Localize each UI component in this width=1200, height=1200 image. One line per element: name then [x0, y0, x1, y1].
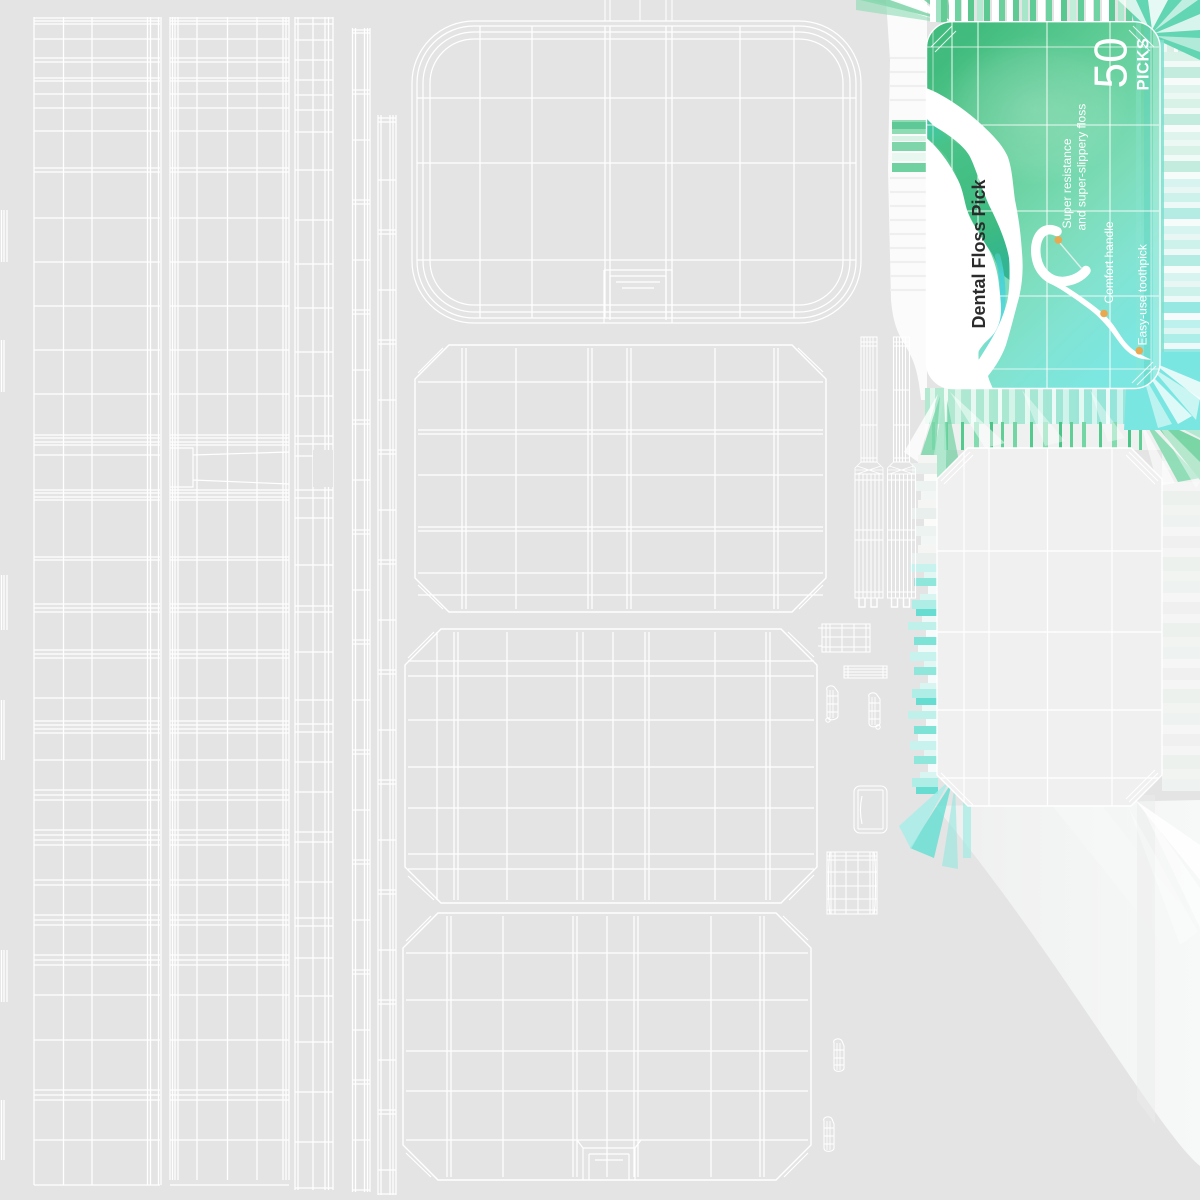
- svg-text:PICKS: PICKS: [1135, 38, 1153, 91]
- svg-text:Super resistance: Super resistance: [1060, 138, 1074, 228]
- svg-text:and super-slippery floss: and super-slippery floss: [1075, 104, 1089, 231]
- svg-text:Dental Floss Pick: Dental Floss Pick: [969, 178, 989, 328]
- svg-text:Easy-use toothpick: Easy-use toothpick: [1136, 243, 1150, 345]
- svg-text:Comfort handle: Comfort handle: [1102, 221, 1116, 303]
- svg-text:50: 50: [1085, 37, 1137, 88]
